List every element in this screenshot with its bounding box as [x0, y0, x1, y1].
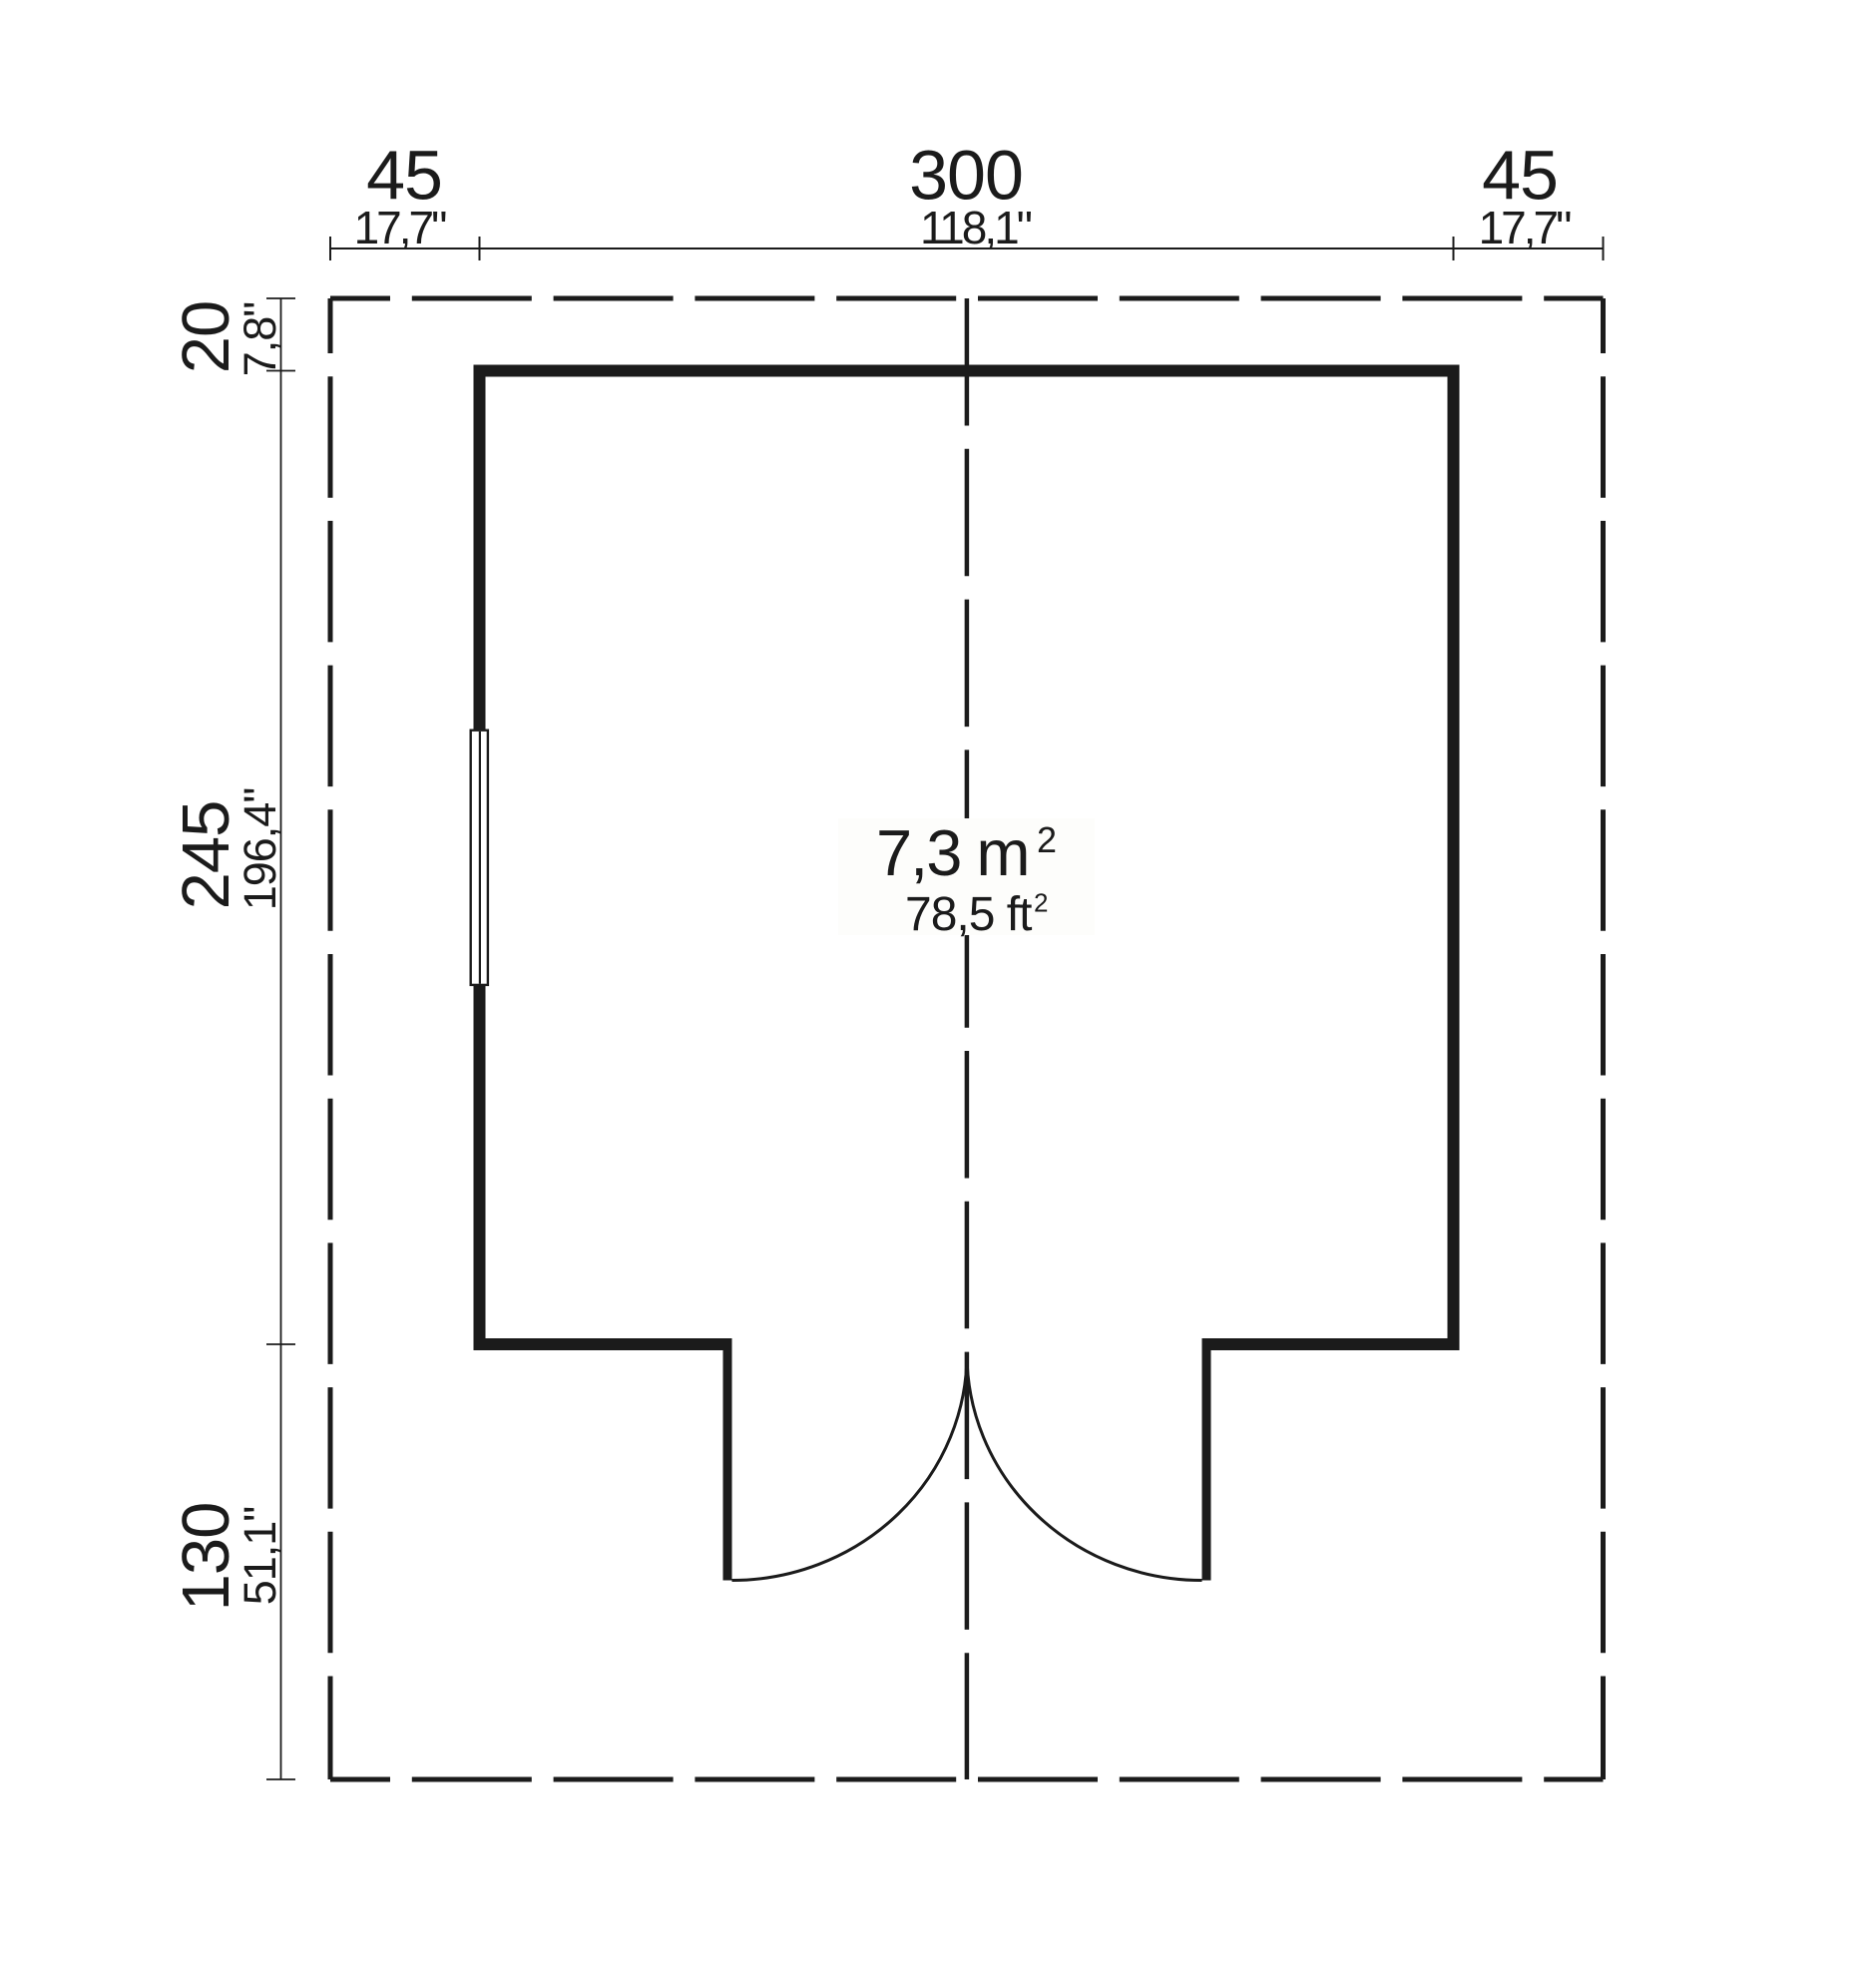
- svg-text:78,5 ft: 78,5 ft: [905, 888, 1032, 941]
- svg-text:2: 2: [1034, 888, 1048, 918]
- svg-text:196,4": 196,4": [234, 788, 285, 911]
- svg-text:118,1": 118,1": [920, 202, 1032, 253]
- svg-text:20: 20: [169, 301, 243, 374]
- svg-text:7,8": 7,8": [234, 302, 285, 377]
- svg-text:17,7": 17,7": [354, 202, 447, 253]
- svg-text:245: 245: [169, 801, 243, 910]
- svg-text:7,3 m: 7,3 m: [876, 816, 1029, 889]
- svg-text:2: 2: [1037, 819, 1057, 860]
- svg-text:51,1": 51,1": [234, 1507, 285, 1606]
- svg-text:17,7": 17,7": [1479, 202, 1572, 253]
- svg-text:130: 130: [169, 1503, 243, 1612]
